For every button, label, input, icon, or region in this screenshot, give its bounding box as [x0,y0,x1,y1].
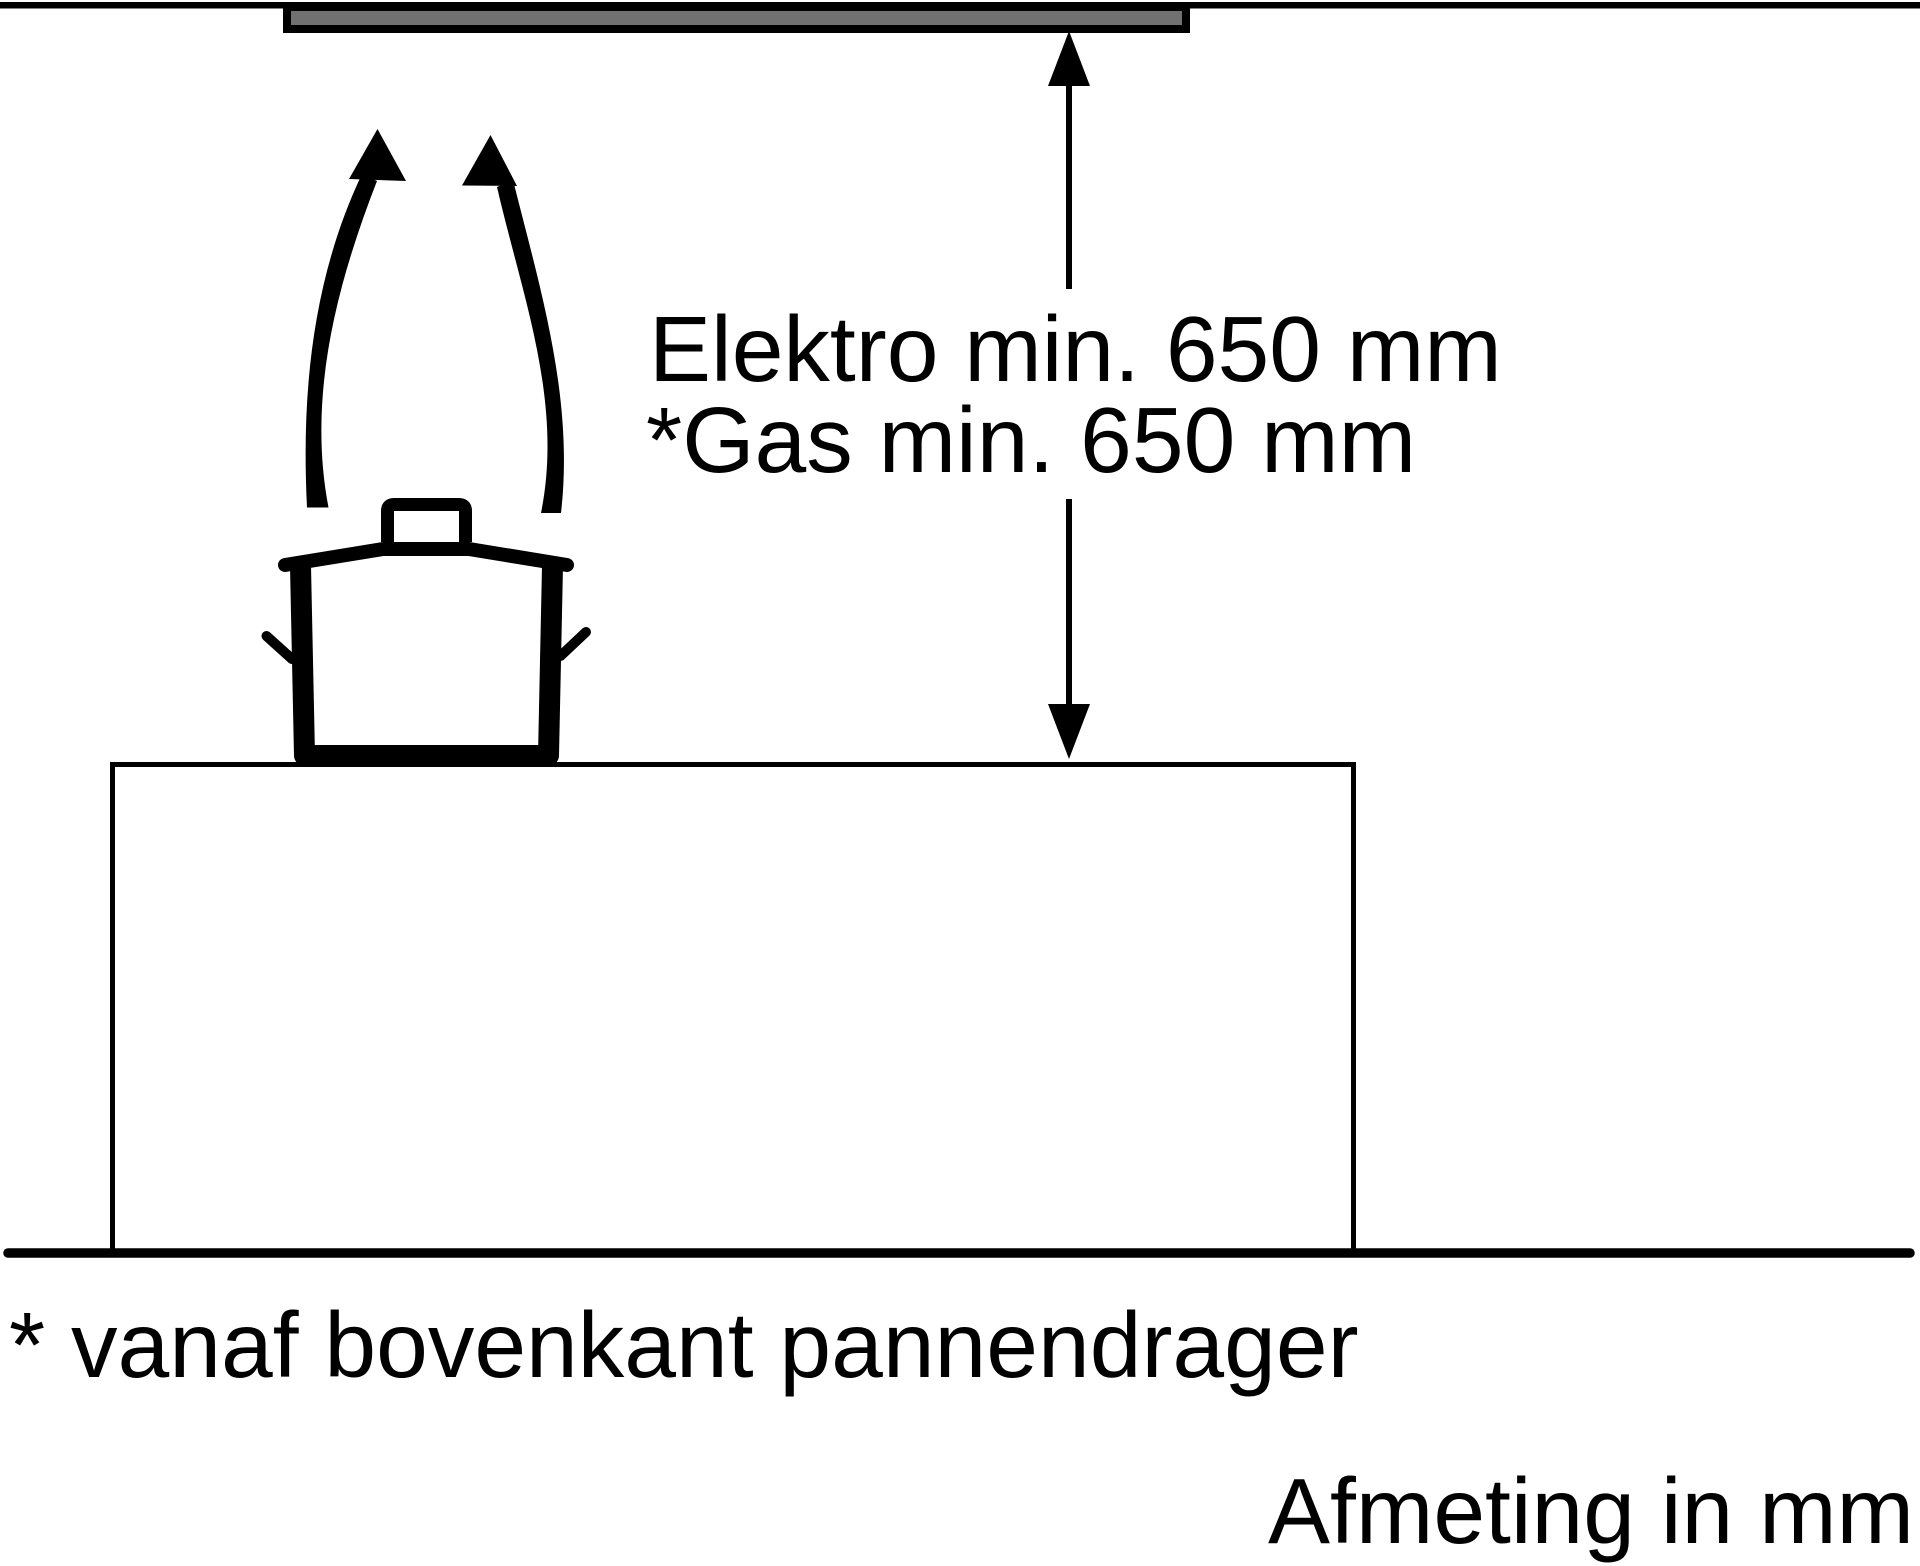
svg-text:*Gas min. 650 mm: *Gas min. 650 mm [646,388,1416,492]
svg-text:Elektro min. 650 mm: Elektro min. 650 mm [649,297,1502,401]
svg-text:* vanaf bovenkant pannendrager: * vanaf bovenkant pannendrager [9,1293,1359,1397]
svg-text:Afmeting in mm: Afmeting in mm [1268,1459,1914,1563]
